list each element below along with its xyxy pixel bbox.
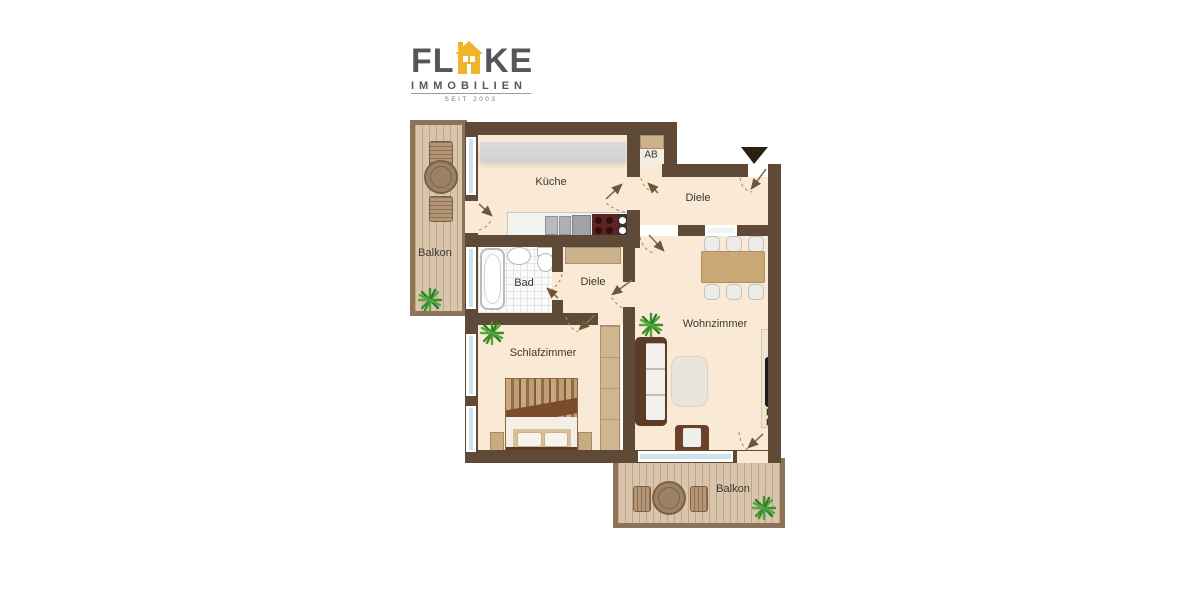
plant-livingroom <box>640 314 662 336</box>
door-swing-arcs <box>479 178 752 450</box>
plan-annotations <box>0 0 1200 600</box>
plant-balcony-left <box>419 289 441 311</box>
label-bedroom: Schlafzimmer <box>510 347 577 359</box>
label-hall-mid: Diele <box>580 276 605 288</box>
label-balcony-bottom: Balkon <box>716 483 750 495</box>
label-ab: AB <box>644 150 657 161</box>
door-kitchen <box>606 185 621 199</box>
plant-balcony-bottom <box>753 497 775 519</box>
door-bath <box>548 289 558 298</box>
label-livingroom: Wohnzimmer <box>683 318 748 330</box>
label-bath: Bad <box>514 277 534 289</box>
door-living-hall <box>613 280 632 294</box>
door-hall-living <box>649 235 663 250</box>
door-living-balcony <box>749 434 763 447</box>
plant-bedroom <box>481 322 503 344</box>
page: FL KE IMMOBILIEN SEIT 2003 <box>0 0 1200 600</box>
door-entrance <box>752 169 766 188</box>
door-ab <box>649 184 658 193</box>
label-hall-top: Diele <box>685 192 710 204</box>
door-kitchen-balcony <box>479 204 491 215</box>
door-bedroom <box>580 315 595 329</box>
entrance-arrow-icon <box>741 147 768 164</box>
label-kitchen: Küche <box>535 176 566 188</box>
door-swings <box>479 169 766 447</box>
label-balcony-left: Balkon <box>418 247 452 259</box>
